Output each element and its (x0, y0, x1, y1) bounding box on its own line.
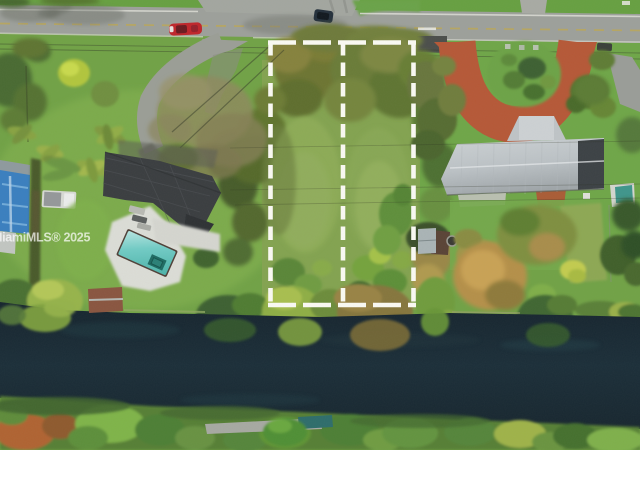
svg-text:MiamiMLS® 2025: MiamiMLS® 2025 (0, 231, 90, 245)
